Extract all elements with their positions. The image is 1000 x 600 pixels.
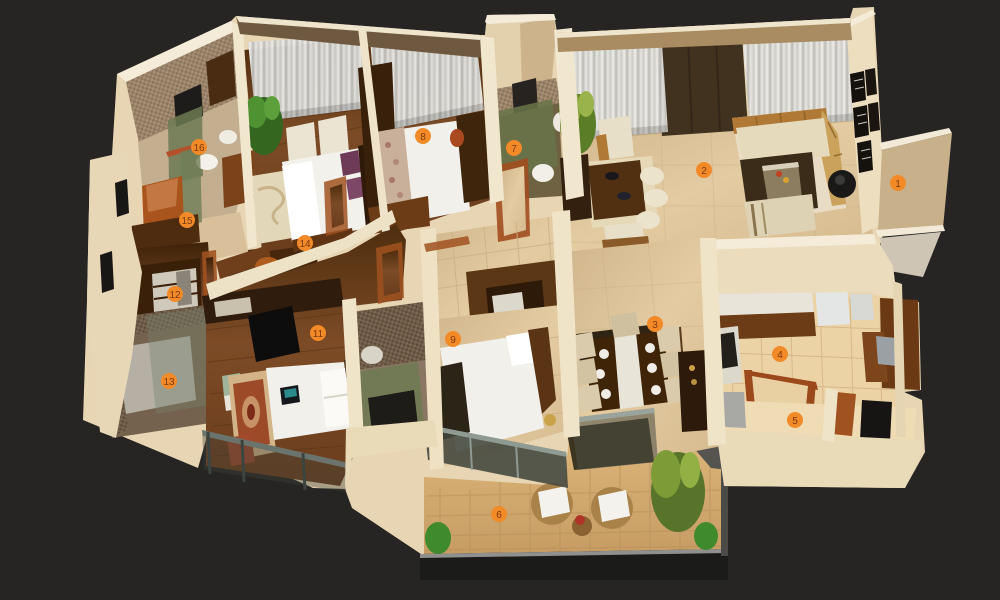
svg-text:15: 15 (181, 216, 193, 227)
svg-text:16: 16 (193, 143, 205, 154)
svg-text:3: 3 (652, 320, 658, 331)
svg-text:1: 1 (895, 179, 901, 190)
svg-text:6: 6 (496, 510, 502, 521)
svg-text:5: 5 (792, 416, 798, 427)
svg-text:4: 4 (777, 350, 783, 361)
svg-text:14: 14 (299, 239, 311, 250)
svg-text:8: 8 (420, 132, 426, 143)
svg-text:2: 2 (701, 166, 707, 177)
svg-text:9: 9 (450, 335, 456, 346)
svg-text:12: 12 (169, 290, 181, 301)
svg-text:13: 13 (163, 377, 175, 388)
svg-text:7: 7 (511, 144, 517, 155)
svg-text:11: 11 (313, 329, 324, 340)
